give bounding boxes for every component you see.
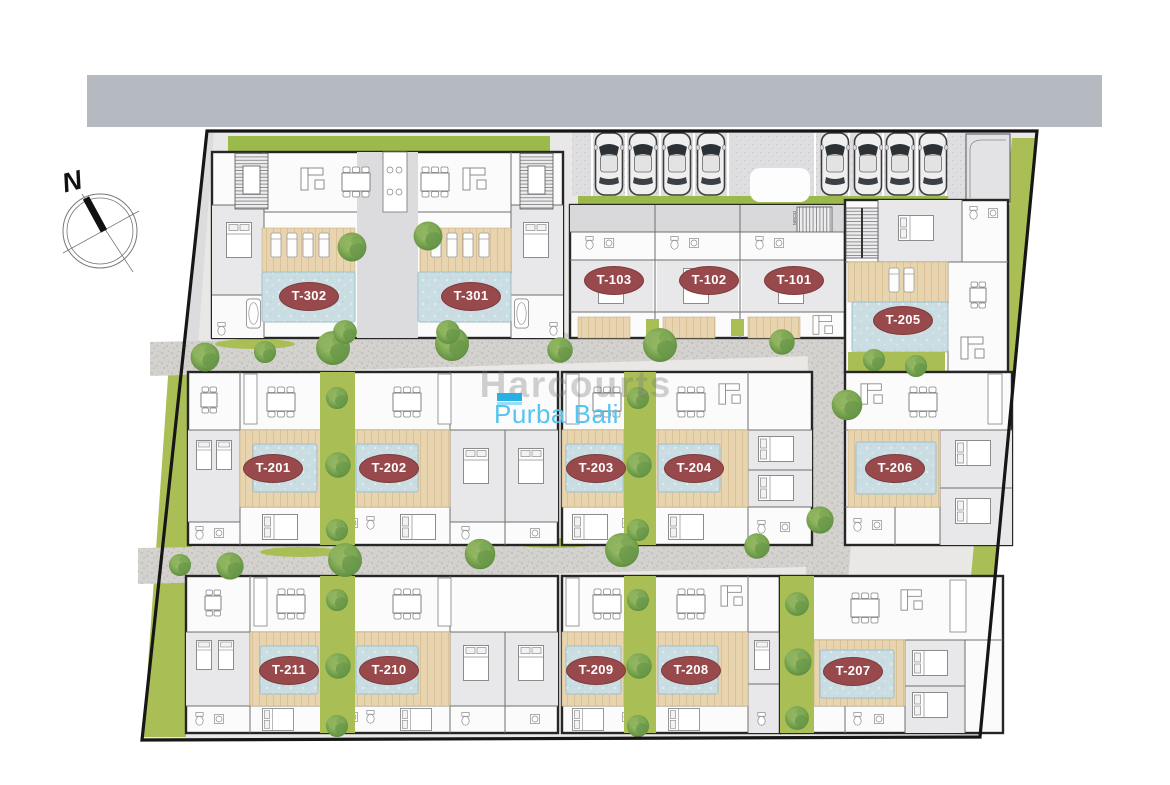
- lounger-icon: [904, 268, 914, 292]
- toilet-icon: [462, 527, 469, 540]
- dining-table-icon: [277, 589, 305, 619]
- tree-icon: [547, 337, 573, 363]
- sink-icon: [531, 529, 540, 538]
- tree-icon: [806, 506, 833, 533]
- dining-table-icon: [593, 589, 621, 619]
- tree-icon: [627, 715, 649, 737]
- building-block-t207: [780, 576, 1003, 733]
- stairs-down-label: DOWN: [792, 211, 797, 225]
- lounger-icon: [319, 233, 329, 257]
- parking-area: [572, 131, 1010, 205]
- driveway-turn: [750, 168, 810, 202]
- lounger-icon: [287, 233, 297, 257]
- tree-icon: [785, 592, 809, 616]
- sink-icon: [875, 715, 884, 724]
- bed-icon: [401, 515, 436, 540]
- toilet-icon: [671, 237, 678, 250]
- tree-icon: [643, 328, 677, 362]
- tree-icon: [254, 341, 276, 363]
- unit-label-t302: T-302: [279, 282, 339, 311]
- bed-icon: [899, 216, 934, 241]
- car-icon: [696, 133, 726, 195]
- kitchen-icon: [988, 374, 1002, 424]
- tree-icon: [863, 349, 885, 371]
- unit-label-t205: T-205: [873, 306, 933, 335]
- kitchen-icon: [566, 578, 579, 626]
- toilet-icon: [367, 517, 374, 530]
- tree-icon: [325, 653, 351, 679]
- tree-icon: [744, 533, 770, 559]
- tree-icon: [626, 452, 652, 478]
- sink-icon: [690, 239, 699, 248]
- bed-icon: [573, 515, 608, 540]
- tree-icon: [169, 554, 191, 576]
- building-block-t209-t208: [562, 576, 780, 733]
- tree-icon: [191, 343, 220, 372]
- toilet-icon: [854, 713, 861, 726]
- sink-icon: [605, 239, 614, 248]
- lounger-icon: [463, 233, 473, 257]
- site-plan: N DOWN Harcourts Purba Bali T-302 T-301 …: [0, 0, 1170, 785]
- sink-icon: [531, 715, 540, 724]
- road: [87, 75, 1102, 127]
- compass-north-label: N: [59, 164, 86, 198]
- sink-icon: [989, 209, 998, 218]
- sink-icon: [873, 521, 882, 530]
- building-block-t211-t210: [186, 576, 558, 733]
- bathtub-icon: [246, 299, 260, 328]
- bed-icon: [524, 223, 549, 258]
- dining-table-icon: [909, 387, 937, 417]
- unit-label-t102: T-102: [679, 266, 739, 295]
- bed-icon: [464, 646, 489, 681]
- unit-label-t202: T-202: [359, 454, 419, 483]
- kitchen-icon: [244, 374, 257, 424]
- tree-icon: [326, 387, 348, 409]
- car-icon: [662, 133, 692, 195]
- tree-icon: [326, 715, 348, 737]
- tree-icon: [769, 329, 795, 355]
- toilet-icon: [367, 711, 374, 724]
- tree-icon: [627, 589, 649, 611]
- lounger-icon: [271, 233, 281, 257]
- bed-icon: [913, 651, 948, 676]
- bed-icon: [263, 708, 294, 730]
- garden: [848, 352, 945, 372]
- toilet-icon: [758, 713, 765, 726]
- tree-icon: [325, 452, 351, 478]
- building-block-t206: [845, 372, 1012, 545]
- tree-icon: [328, 543, 362, 577]
- unit-label-t211: T-211: [259, 656, 319, 685]
- tree-icon: [338, 233, 367, 262]
- tree-icon: [784, 648, 811, 675]
- toilet-icon: [196, 527, 203, 540]
- bed-icon: [669, 708, 700, 730]
- kitchen-icon: [438, 374, 451, 424]
- dining-table-icon: [421, 167, 449, 197]
- building-block-t205: [845, 200, 1008, 372]
- kitchen-icon: [383, 152, 407, 212]
- unit-label-t101: T-101: [764, 266, 824, 295]
- bed-icon: [217, 441, 232, 470]
- bed-icon: [669, 515, 704, 540]
- unit-label-t206: T-206: [865, 454, 925, 483]
- compass-icon: N: [59, 164, 139, 272]
- lounger-icon: [479, 233, 489, 257]
- bed-icon: [401, 708, 432, 730]
- car-icon: [853, 133, 883, 195]
- sink-icon: [215, 715, 224, 724]
- sun-deck: [578, 317, 630, 338]
- unit-label-t207: T-207: [823, 657, 883, 686]
- toilet-icon: [854, 519, 861, 532]
- tree-icon: [465, 539, 496, 570]
- car-icon: [820, 133, 850, 195]
- toilet-icon: [550, 323, 557, 336]
- bathtub-icon: [514, 299, 528, 328]
- unit-label-t208: T-208: [661, 656, 721, 685]
- dining-table-icon: [677, 387, 705, 417]
- tree-icon: [436, 320, 460, 344]
- kitchen-icon: [950, 580, 966, 632]
- unit-label-t203: T-203: [566, 454, 626, 483]
- car-icon: [918, 133, 948, 195]
- bed-icon: [755, 641, 770, 670]
- lounger-icon: [889, 268, 899, 292]
- kitchen-icon: [254, 578, 267, 626]
- bed-icon: [227, 223, 252, 258]
- unit-label-t301: T-301: [441, 282, 501, 311]
- bed-icon: [519, 449, 544, 484]
- dining-table-icon: [267, 387, 295, 417]
- car-icon: [885, 133, 915, 195]
- bed-icon: [219, 641, 234, 670]
- sink-icon: [215, 529, 224, 538]
- sink-icon: [775, 239, 784, 248]
- toilet-icon: [196, 713, 203, 726]
- bed-icon: [519, 646, 544, 681]
- unit-label-t210: T-210: [359, 656, 419, 685]
- bed-icon: [263, 515, 298, 540]
- tree-icon: [785, 706, 809, 730]
- bed-icon: [464, 449, 489, 484]
- lounger-icon: [447, 233, 457, 257]
- building-block-t302-t301: [212, 152, 563, 338]
- bed-icon: [913, 693, 948, 718]
- bed-icon: [197, 641, 212, 670]
- bed-icon: [197, 441, 212, 470]
- tree-icon: [333, 320, 357, 344]
- tree-icon: [905, 355, 927, 377]
- dining-table-icon: [677, 589, 705, 619]
- unit-label-t204: T-204: [664, 454, 724, 483]
- unit-label-t103: T-103: [584, 266, 644, 295]
- unit-label-t209: T-209: [566, 656, 626, 685]
- unit-label-t201: T-201: [243, 454, 303, 483]
- dining-table-icon: [393, 387, 421, 417]
- dining-table-icon: [342, 167, 370, 197]
- stairs-icon: [797, 207, 832, 232]
- toilet-icon: [758, 521, 765, 534]
- toilet-icon: [970, 207, 977, 220]
- bed-icon: [759, 476, 794, 501]
- toilet-icon: [462, 713, 469, 726]
- car-icon: [594, 133, 624, 195]
- sink-icon: [781, 523, 790, 532]
- tree-icon: [832, 390, 863, 421]
- tree-icon: [414, 222, 443, 251]
- utility-room: [966, 134, 1010, 202]
- lounger-icon: [303, 233, 313, 257]
- watermark-location: Purba Bali: [494, 399, 619, 430]
- tree-icon: [626, 653, 652, 679]
- tree-icon: [627, 519, 649, 541]
- bed-icon: [573, 708, 604, 730]
- tree-icon: [216, 552, 243, 579]
- bed-icon: [956, 441, 991, 466]
- toilet-icon: [756, 237, 763, 250]
- dining-table-icon: [851, 593, 879, 623]
- dining-table-icon: [393, 589, 421, 619]
- toilet-icon: [586, 237, 593, 250]
- car-icon: [628, 133, 658, 195]
- tree-icon: [326, 519, 348, 541]
- kitchen-icon: [438, 578, 451, 626]
- bed-icon: [759, 437, 794, 462]
- tree-icon: [326, 589, 348, 611]
- toilet-icon: [218, 323, 225, 336]
- bed-icon: [956, 499, 991, 524]
